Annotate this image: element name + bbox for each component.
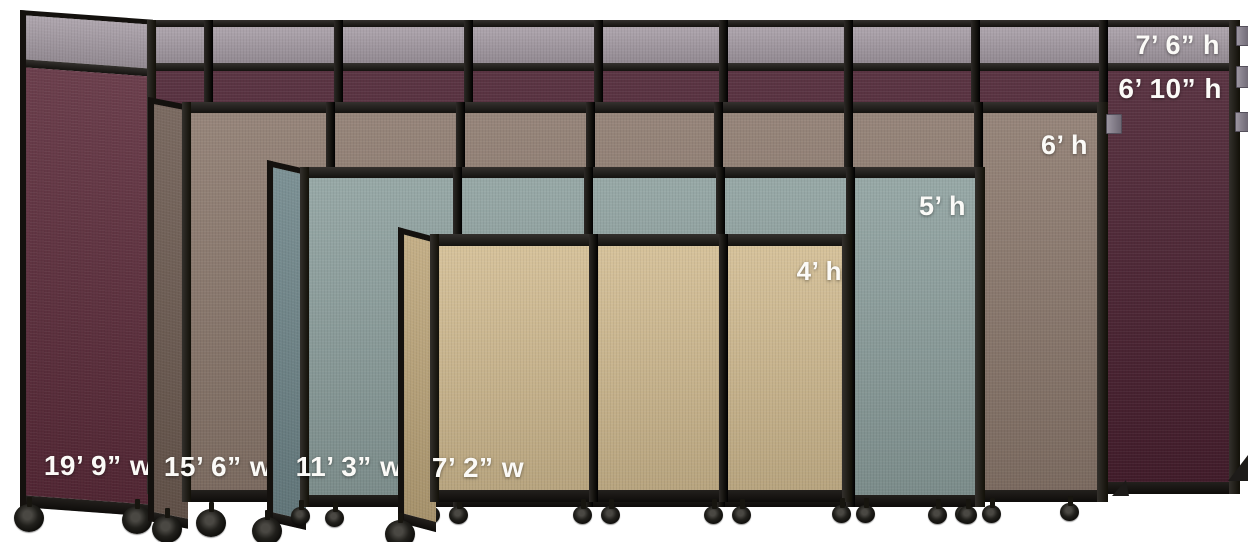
caster-wheel [928, 506, 947, 524]
panel-divider [589, 234, 598, 502]
floor-bracket [1228, 452, 1248, 481]
width-label-19ft9: 19’ 9” w [43, 450, 153, 482]
top-frame [430, 234, 852, 246]
wall-bracket [1235, 112, 1248, 132]
hinge-bracket [1106, 114, 1122, 134]
height-label-4ft: 4’ h [716, 256, 842, 287]
width-label-15ft6: 15’ 6” w [160, 451, 276, 483]
height-label-7ft6: 7’ 6” h [1060, 30, 1220, 61]
caster-wheel [152, 515, 182, 542]
wall-bracket [1236, 66, 1248, 88]
bottom-rail [430, 490, 852, 502]
caster-wheel [196, 509, 226, 537]
caster-wheel [832, 505, 851, 523]
caster-wheel [704, 506, 723, 524]
caster-wheel [573, 506, 592, 524]
caster-wheel [385, 520, 415, 542]
caster-wheel [291, 507, 310, 525]
wall-bracket [1236, 26, 1248, 46]
caster-wheel [1060, 503, 1079, 521]
end-post [842, 234, 852, 502]
width-label-7ft2: 7’ 2” w [420, 452, 536, 484]
top-frame [182, 102, 1108, 113]
fold-post [182, 102, 191, 502]
width-label-11ft3: 11’ 3” w [290, 451, 408, 483]
caster-wheel [982, 505, 1001, 523]
top-frame [147, 20, 1240, 27]
end-post [1097, 102, 1108, 502]
fabric-panel [26, 67, 153, 504]
caster-wheel [856, 505, 875, 523]
end-post [975, 167, 985, 507]
end-panel [20, 10, 153, 517]
partition-size-comparison: 7’ 6” h 6’ 10” h 19’ 9” w 6’ [0, 0, 1248, 542]
height-label-6ft: 6’ h [960, 130, 1088, 161]
caster-wheel [732, 506, 751, 524]
caster-wheel [14, 504, 44, 532]
height-label-5ft: 5’ h [840, 191, 966, 222]
top-frame [300, 167, 985, 178]
height-label-6ft10: 6’ 10” h [1060, 73, 1222, 105]
caster-wheel [252, 517, 282, 542]
caster-wheel [601, 506, 620, 524]
mid-frame [147, 63, 1240, 71]
caster-wheel [958, 506, 977, 524]
caster-wheel [325, 509, 344, 527]
floor-bracket [1112, 477, 1129, 496]
caster-wheel [449, 506, 468, 524]
end-post [1229, 20, 1240, 494]
